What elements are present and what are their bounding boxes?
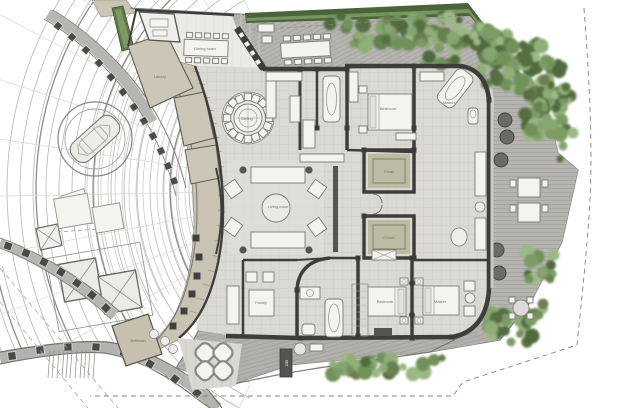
svg-text:205: 205 <box>284 359 289 366</box>
svg-text:Reflexion: Reflexion <box>131 339 146 343</box>
svg-text:Cloak: Cloak <box>384 169 394 174</box>
svg-text:Master: Master <box>443 100 456 105</box>
svg-text:Family: Family <box>255 300 267 305</box>
svg-text:Closet: Closet <box>383 235 395 240</box>
svg-text:Bedroom: Bedroom <box>377 299 394 304</box>
svg-text:Library: Library <box>154 74 166 79</box>
svg-text:Bedroom: Bedroom <box>380 106 397 111</box>
svg-text:Dining: Dining <box>241 116 252 121</box>
svg-text:Living room: Living room <box>268 204 289 209</box>
svg-text:Dining room: Dining room <box>194 46 216 51</box>
svg-text:Master: Master <box>434 299 447 304</box>
